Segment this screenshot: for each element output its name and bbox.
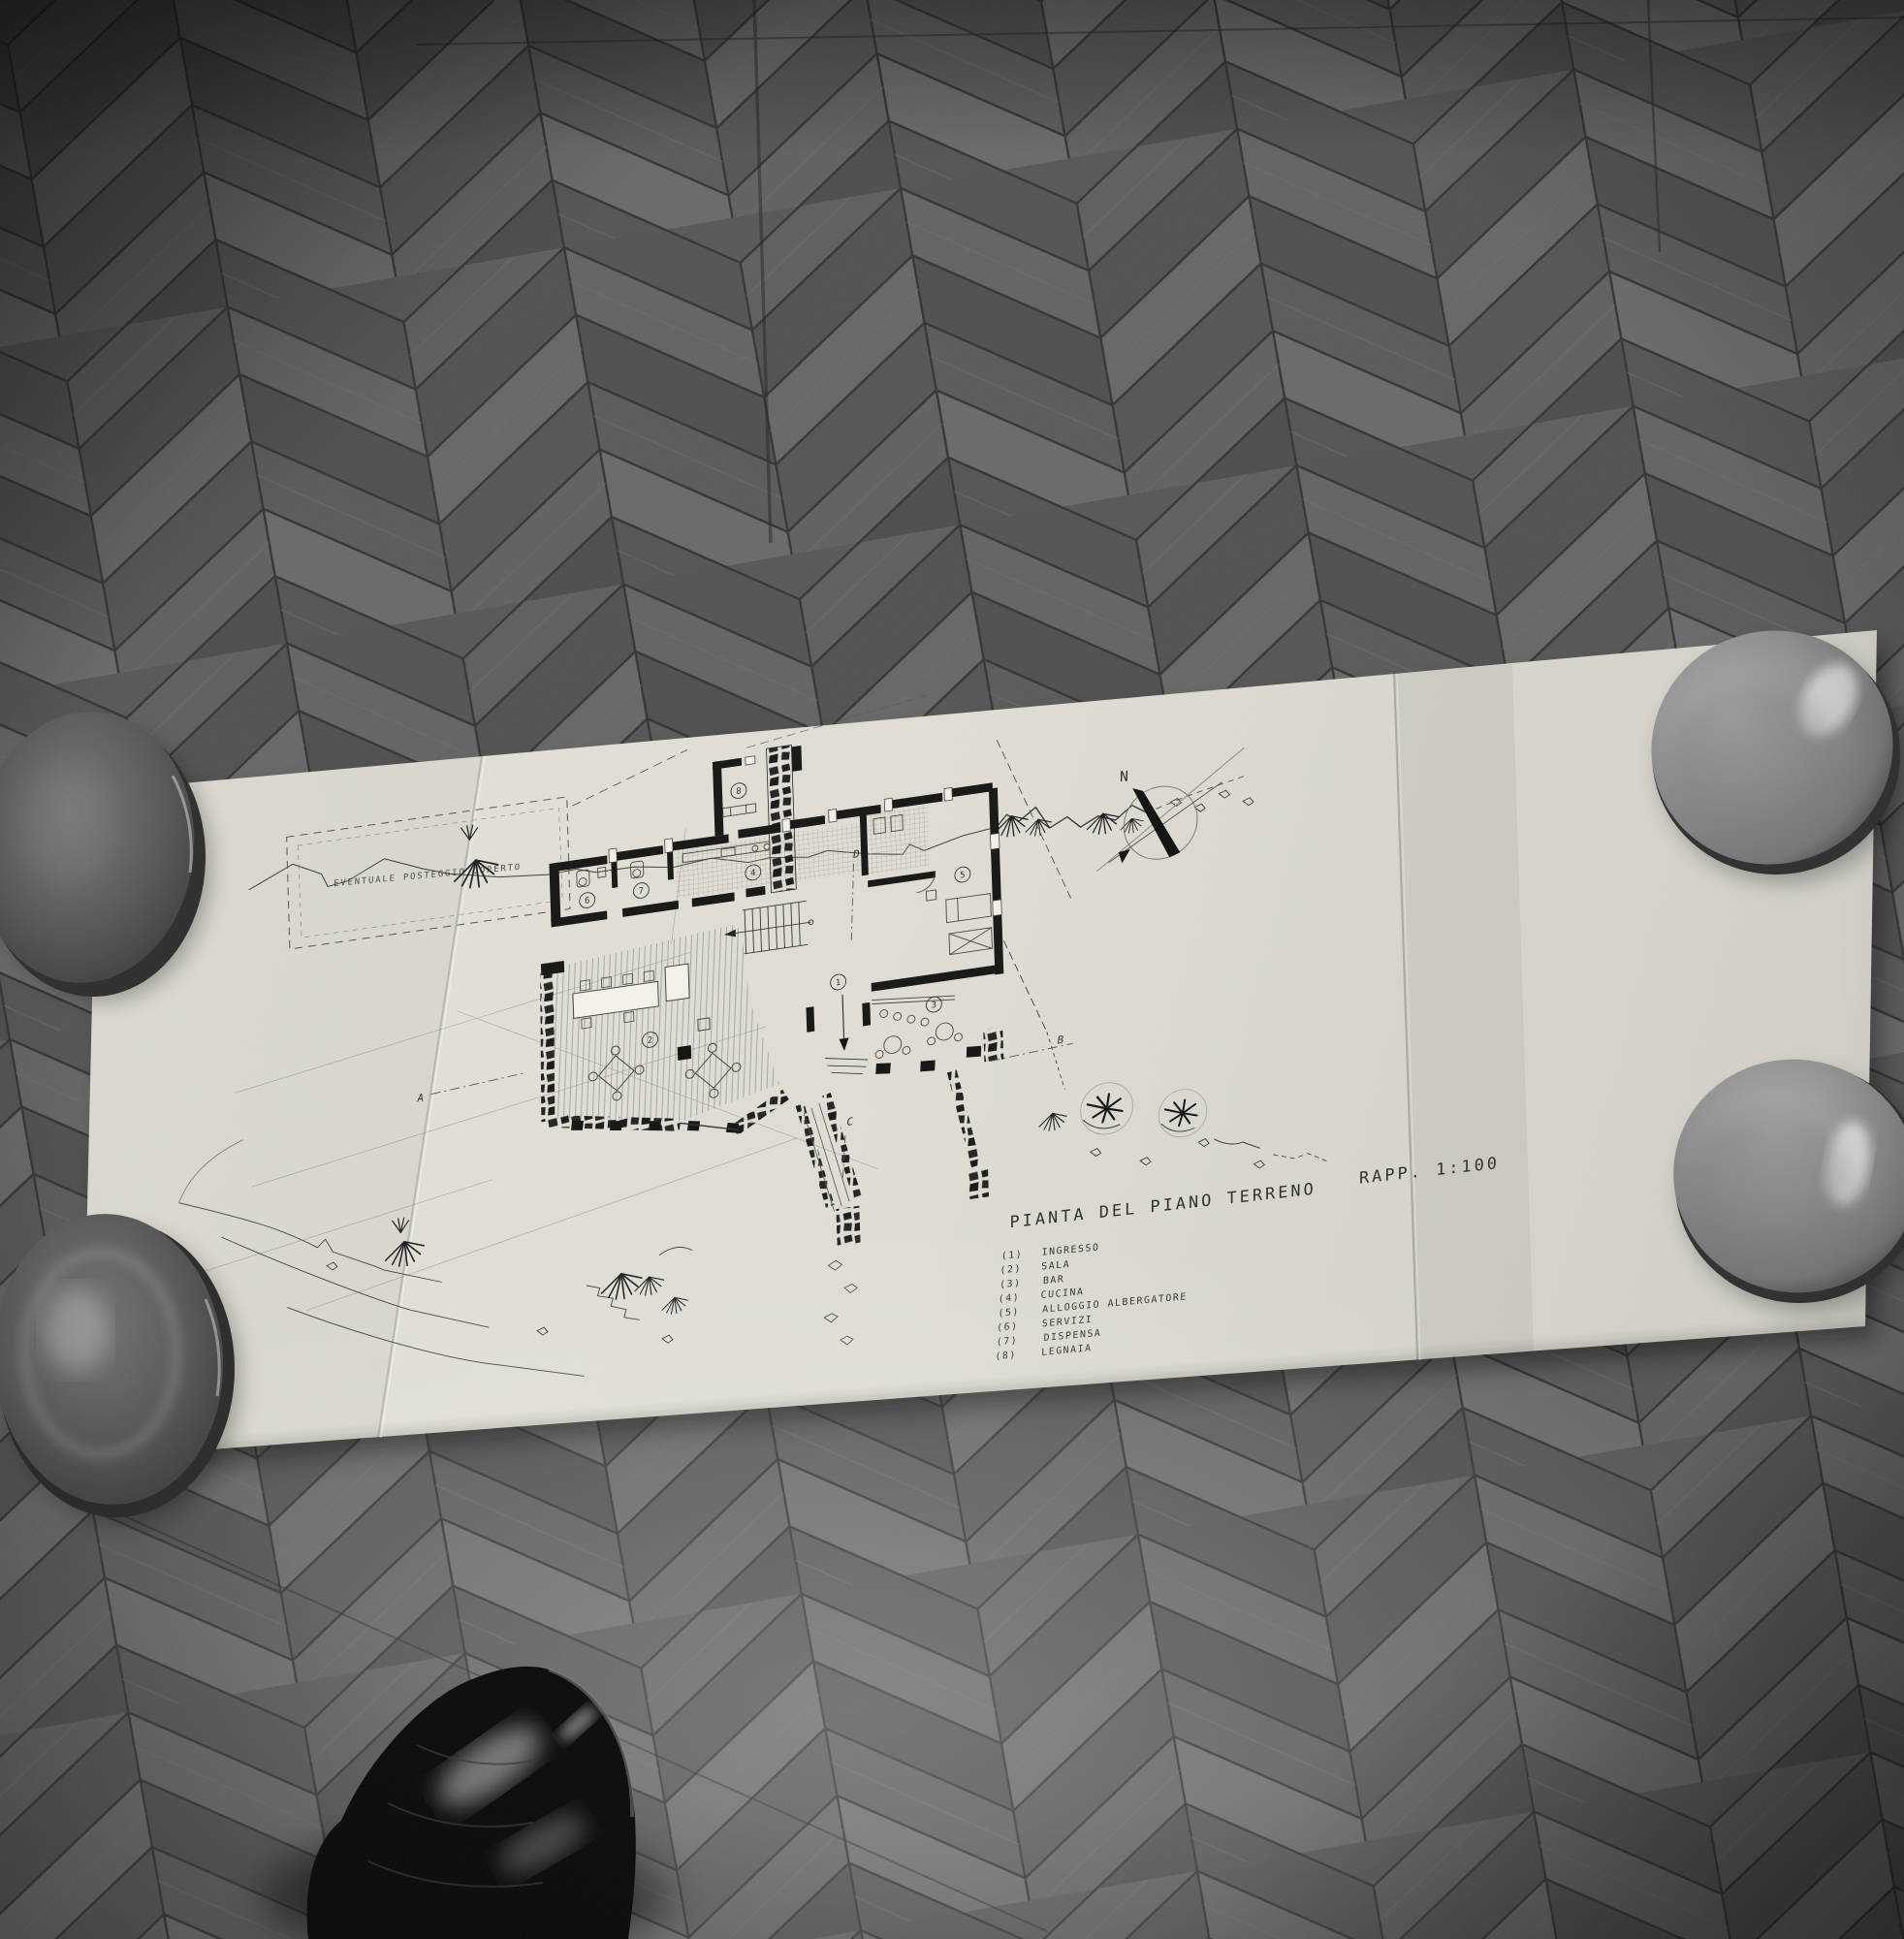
film-grain — [0, 0, 1904, 1939]
photograph: N EVENTUALE POSTEGGIO COPERTO — [0, 0, 1904, 1939]
